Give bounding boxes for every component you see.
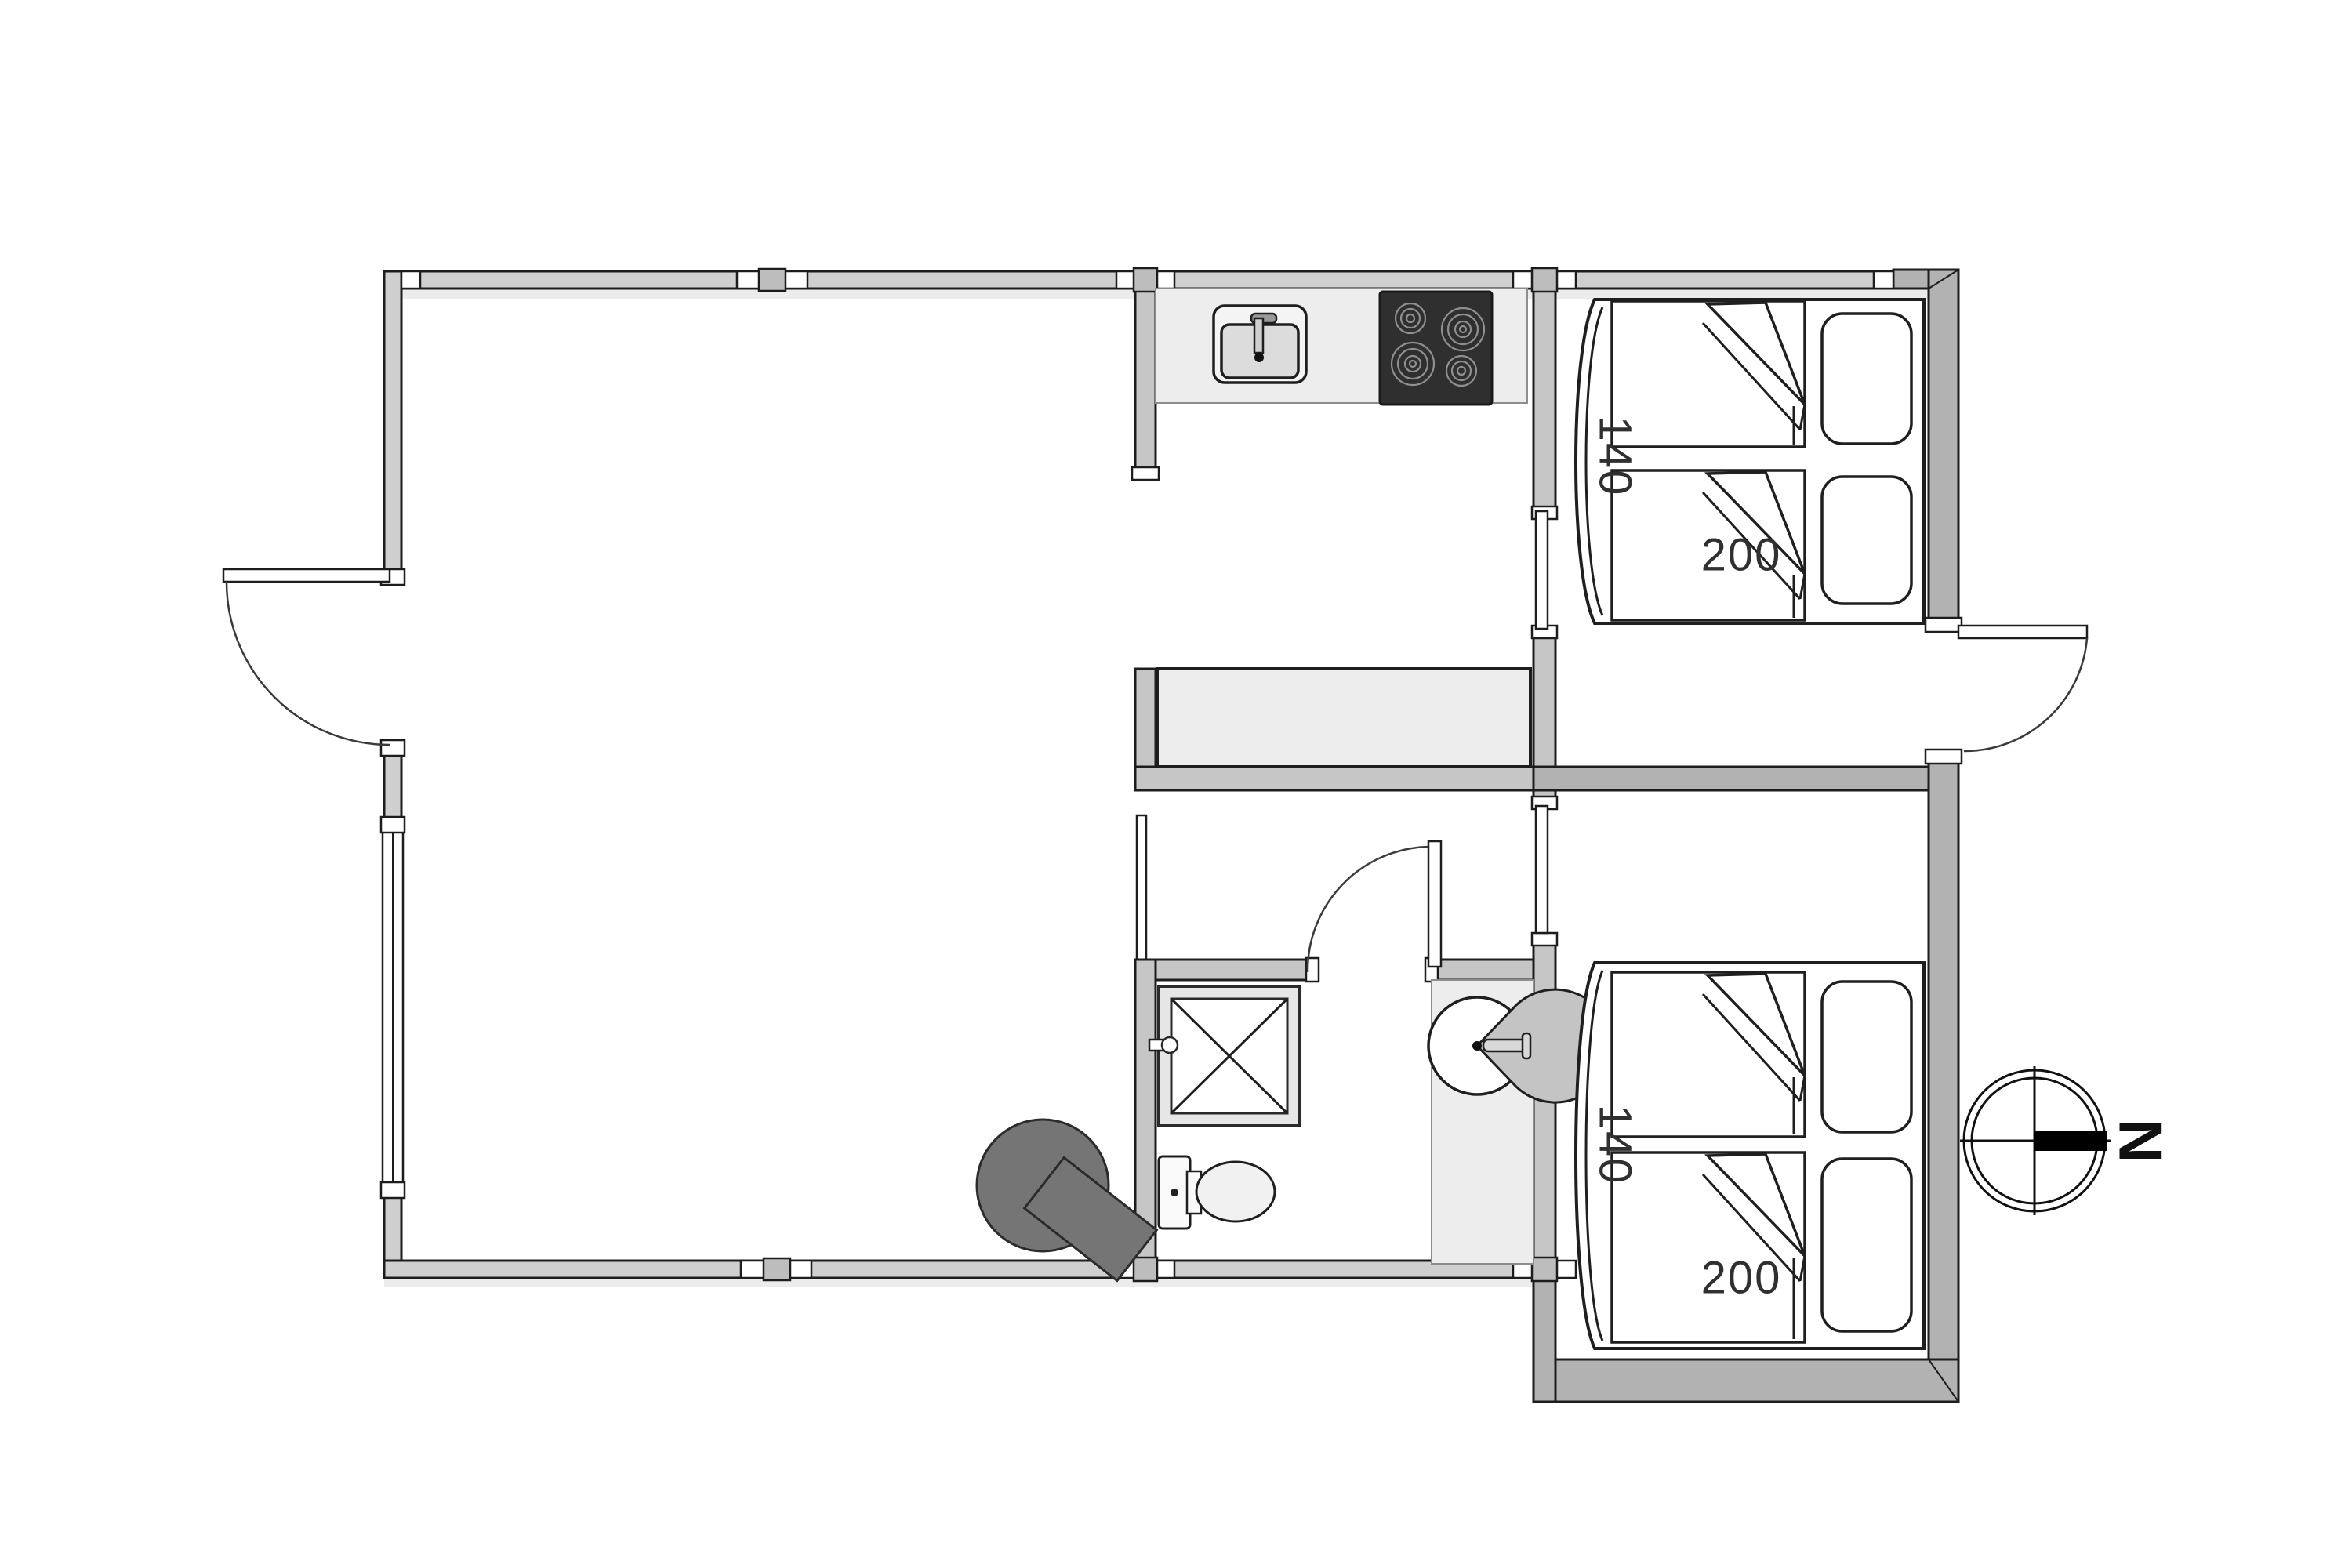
wall-shadow [384, 1278, 1534, 1287]
bed-width-label: 140 [1590, 416, 1641, 497]
bed-length-label: 200 [1701, 1252, 1782, 1303]
window-top-right-jamb [1874, 271, 1893, 289]
window-top-living [737, 269, 808, 291]
bedroom2-bed: 140 200 [1576, 963, 1924, 1348]
north-label: N [2106, 1119, 2175, 1163]
bedroom1-exterior-door [1926, 618, 2087, 764]
window-bottom-living [741, 1258, 811, 1280]
window-left-wall [381, 817, 405, 1198]
bedroom1-exterior-door-swing [1964, 638, 2087, 751]
bedroom2-west-wall-ext [1534, 1264, 1555, 1402]
bottom-wall-bedroom [1534, 1359, 1958, 1402]
bed-length-label: 200 [1701, 529, 1782, 580]
entry-door-leaf [223, 569, 390, 582]
bathroom-door-swing [1308, 847, 1428, 972]
bedroom1-door-leaf [1536, 511, 1548, 629]
wood-stove [977, 1120, 1156, 1280]
cooktop [1380, 292, 1492, 405]
pillow [1822, 982, 1911, 1132]
bathroom-top-wall-left [1135, 960, 1312, 980]
kitchen [1156, 289, 1527, 405]
right-wall [1929, 270, 1958, 1402]
north-arrow [2034, 1131, 2107, 1151]
toilet [1159, 1156, 1275, 1229]
bedroom1-exterior-door-leaf [1958, 626, 2087, 638]
kitchen-sink [1214, 306, 1306, 383]
bathroom-top-wall-right [1432, 960, 1534, 980]
hall-thin-wall [1137, 815, 1146, 960]
bedroom2-door-leaf [1536, 806, 1548, 933]
bedroom-separator-wall [1534, 767, 1929, 790]
bottom-wall-left [384, 1261, 1534, 1278]
corner-jamb [401, 271, 420, 289]
bedroom1-door [1532, 506, 1557, 638]
entry-door [223, 569, 405, 756]
bedroom1-bed: 140 200 [1576, 299, 1924, 623]
closet-bottom-wall [1135, 767, 1534, 790]
kitchen-left-wall [1135, 289, 1156, 472]
bed-width-label: 140 [1590, 1105, 1641, 1185]
wall-end-jamb [1132, 467, 1159, 480]
floor-plan: 140 200 140 200 N [0, 0, 2352, 1568]
pillow [1822, 314, 1911, 444]
closet [1157, 669, 1530, 767]
pillow [1822, 477, 1911, 604]
shower [1149, 986, 1300, 1126]
compass-icon: N [1960, 1066, 2175, 1215]
entry-door-swing [227, 582, 390, 745]
bathroom-door [1306, 841, 1441, 982]
kitchen-right-wall [1534, 289, 1555, 517]
pillow [1822, 1159, 1911, 1331]
bedroom2-door [1532, 797, 1557, 946]
bathroom-door-leaf [1428, 841, 1441, 967]
toilet-bowl [1196, 1162, 1275, 1221]
